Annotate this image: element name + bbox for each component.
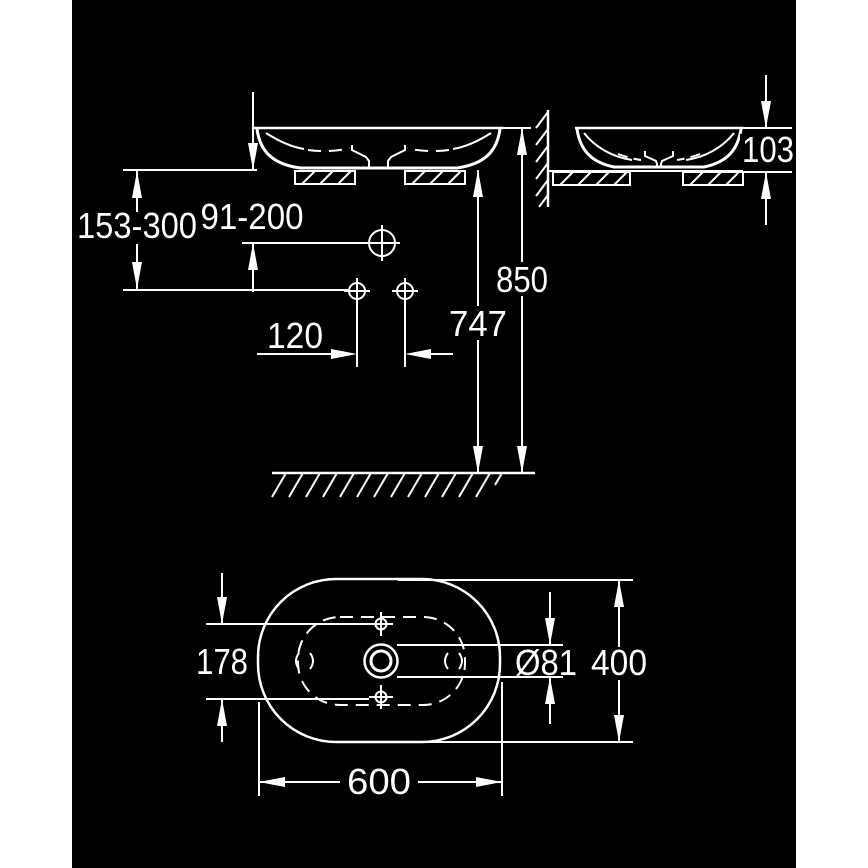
dim-label-floor-to-underside: 747 xyxy=(449,303,507,344)
technical-drawing: 153-300 91-200 120 747 850 103 178 Ø81 4… xyxy=(0,0,868,868)
dim-label-basin-width: 600 xyxy=(347,761,411,802)
dim-label-supply-spacing: 120 xyxy=(267,315,323,356)
dim-label-counter-to-faucet: 91-200 xyxy=(201,196,304,237)
dim-label-basin-height: 103 xyxy=(742,129,794,170)
dim-label-counter-to-supply: 153-300 xyxy=(77,205,197,246)
dim-label-hole-span: 178 xyxy=(196,641,248,682)
dim-label-drain-diameter: Ø81 xyxy=(515,642,577,683)
drawing-canvas xyxy=(72,0,796,868)
dim-label-floor-to-rim: 850 xyxy=(496,259,548,300)
dim-label-basin-depth: 400 xyxy=(591,642,647,683)
drawing-page: 153-300 91-200 120 747 850 103 178 Ø81 4… xyxy=(0,0,868,868)
